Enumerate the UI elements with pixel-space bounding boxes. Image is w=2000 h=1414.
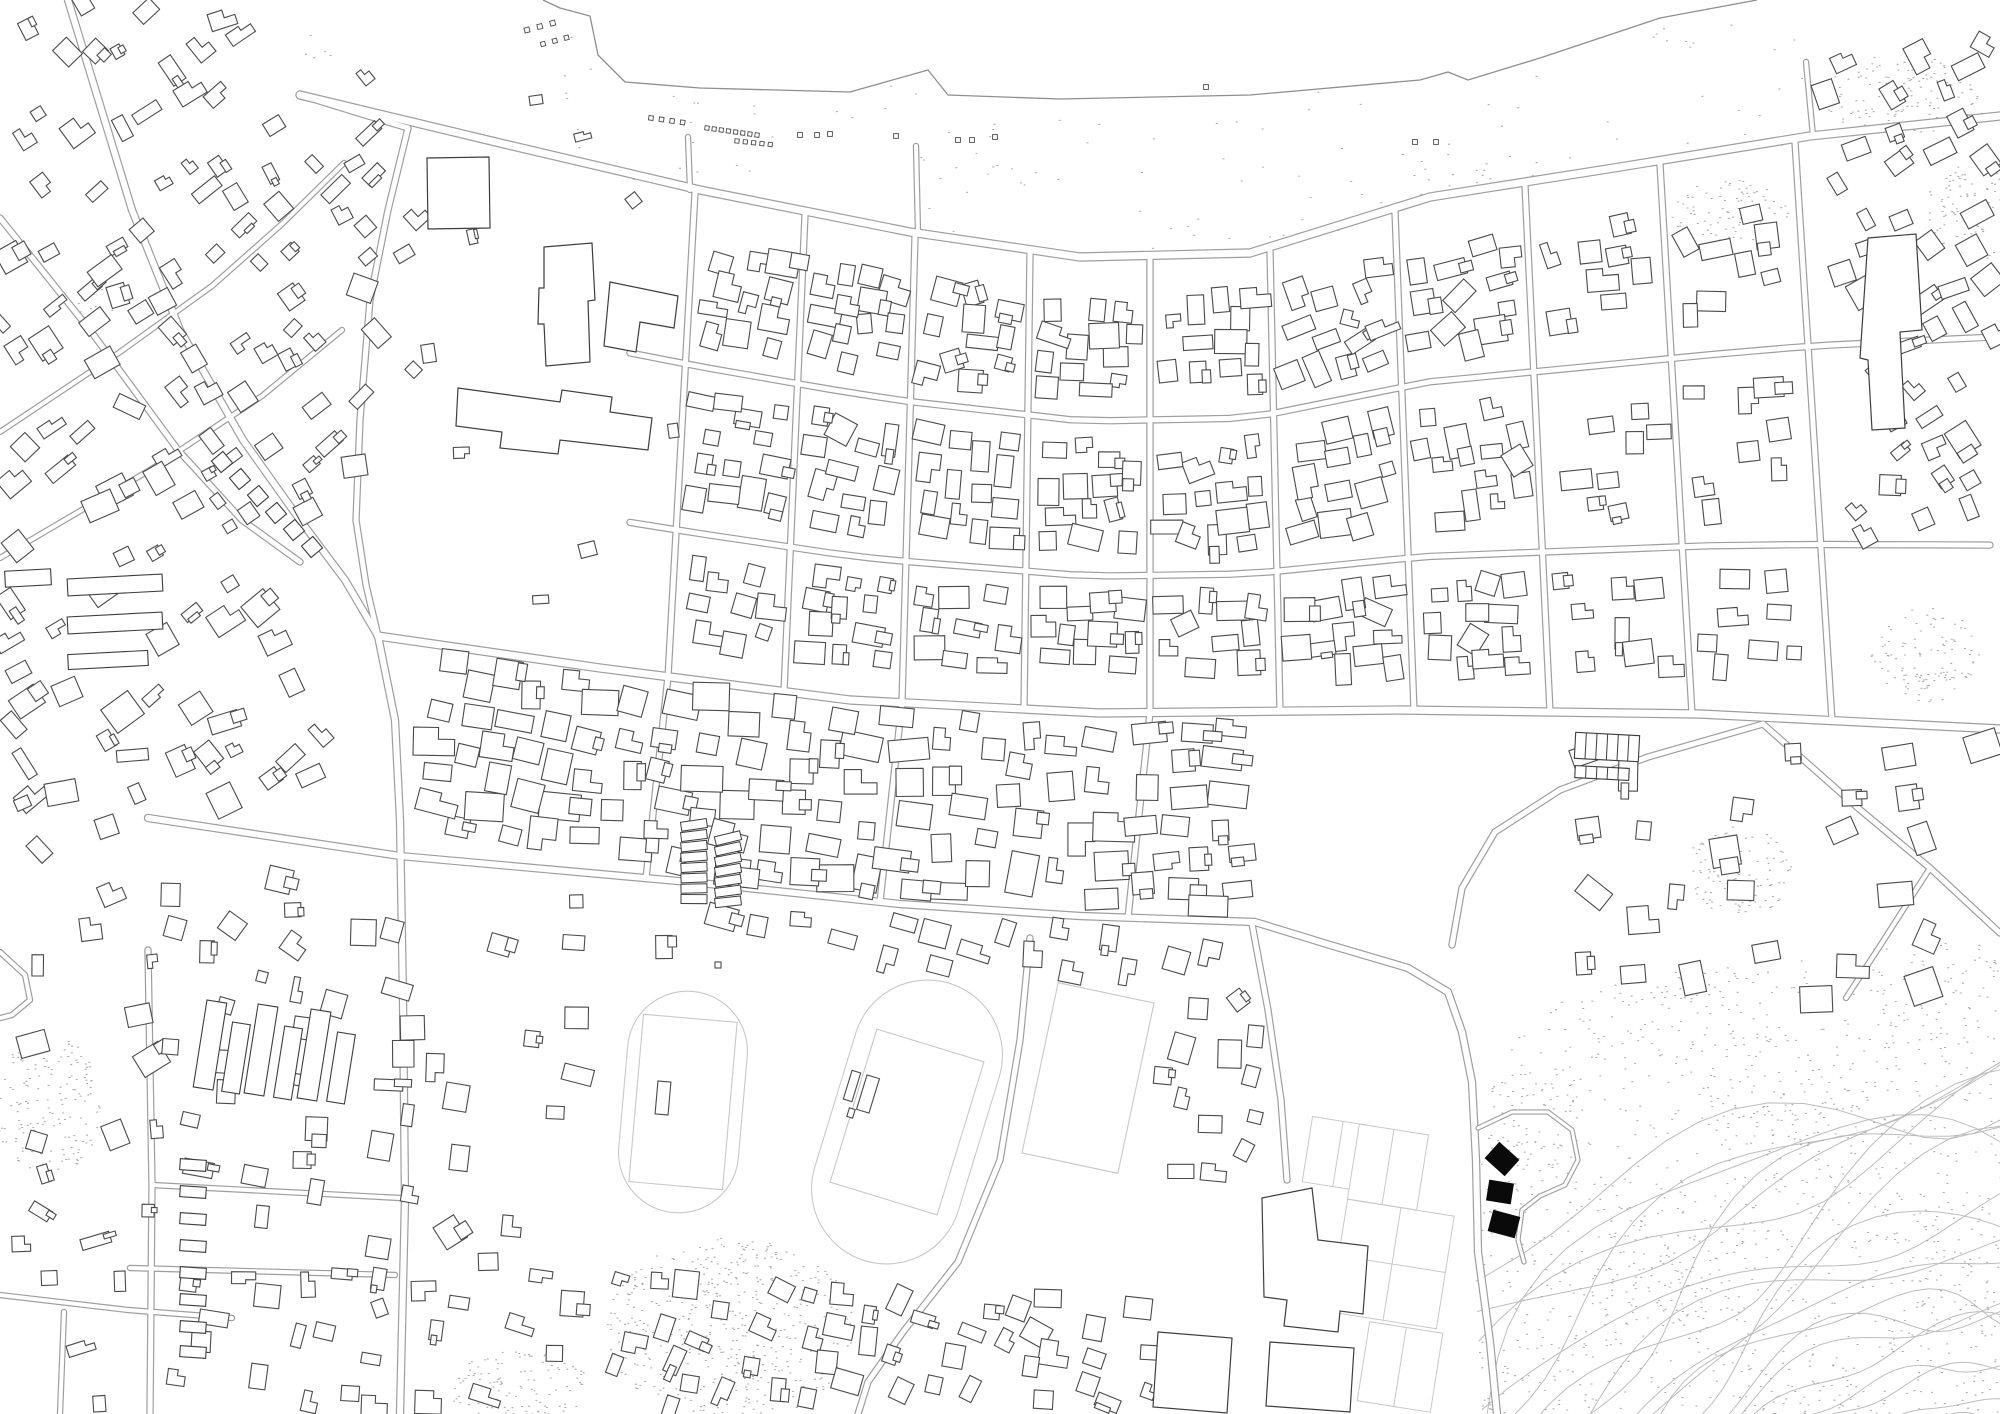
beach-and-vegetation-stipple — [0, 25, 2000, 1414]
contour-lines — [1171, 928, 2000, 1414]
site-plan-map — [0, 0, 2000, 1414]
project-site-buildings — [1485, 1142, 1519, 1237]
beach-huts — [524, 20, 1438, 147]
street-network — [0, 0, 2000, 1414]
coastline — [543, 0, 1757, 99]
site-plan-canvas — [0, 0, 2000, 1414]
